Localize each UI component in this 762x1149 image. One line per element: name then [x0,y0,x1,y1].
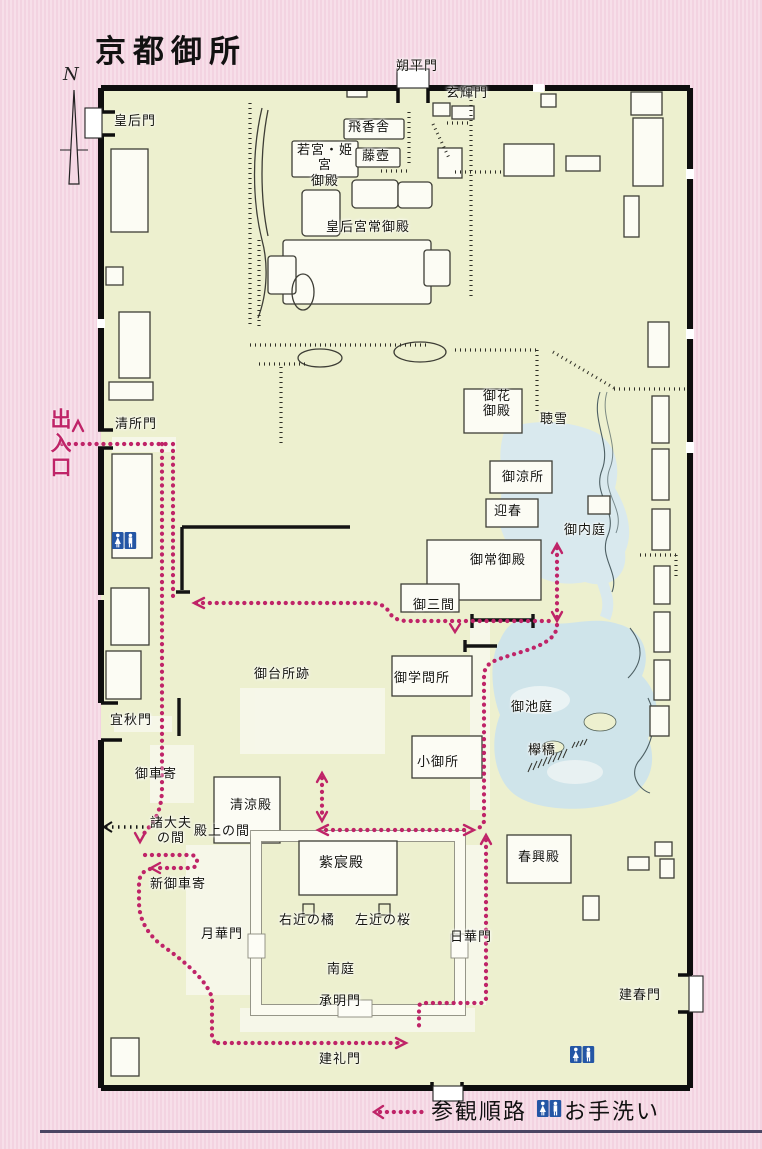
kyoto-gosho-map-page: 京都御所 N 出入口 皇后門 朔平門 玄輝門 飛香舎 藤壺 若宮・姫宮 御殿 皇… [0,0,762,1149]
legend-restroom-label: お手洗い [564,1094,660,1126]
label-shodaibu-no-ma: 諸大夫 の間 [146,816,196,847]
building-shape [111,588,149,645]
storehouse [654,660,670,700]
label-onaitei: 御内庭 [564,523,606,538]
label-ohana-goten: 御花 御殿 [476,389,518,420]
building-shape [424,250,450,286]
label-omima: 御三間 [413,598,455,613]
building-shape [655,842,672,856]
label-kogosho: 小御所 [417,755,459,770]
building-shape [106,267,123,285]
building-chosetsu [588,496,610,514]
building-shape [111,149,148,232]
building-shape [111,1038,139,1076]
building-shape [631,92,662,115]
label-kenreimon: 建礼門 [319,1052,361,1067]
label-oikeniwa: 御池庭 [511,700,553,715]
building-shape [504,144,554,176]
label-keyakibashi: 欅橋 [528,743,556,758]
label-gishumon: 宜秋門 [110,713,152,728]
label-shin-okurumayose: 新御車寄 [150,877,206,892]
label-oryosho: 御涼所 [502,470,544,485]
building-shape [624,196,639,237]
legend-route-label: 参観順路 [431,1094,527,1126]
label-geishun: 迎春 [494,504,522,519]
storehouse [650,706,669,736]
building-shape [452,106,474,119]
label-nantei: 南庭 [327,962,355,977]
label-shunkoden: 春興殿 [518,850,560,865]
storehouse [652,396,669,443]
label-gekkamon: 月華門 [201,927,243,942]
label-kenshunmon: 建春門 [619,988,661,1003]
building-kogogu-tsunegoten [283,240,431,304]
label-fujitsubo: 藤壺 [362,149,390,164]
label-shishinden: 紫宸殿 [319,855,364,872]
north-arrow-icon [60,90,88,184]
building-shape [433,103,450,116]
restroom-icon [537,1100,561,1117]
pond-highlight [547,760,603,784]
storehouse [648,322,669,367]
label-ukon-no-tachibana: 右近の橘 [279,913,335,928]
label-kogomon: 皇后門 [114,114,156,129]
bottom-rule [40,1130,762,1133]
label-kogogu-tsunegoten: 皇后宮常御殿 [326,220,410,235]
label-ogakumonjo: 御学問所 [394,671,450,686]
building-shape [660,859,674,878]
label-seiryoden: 清涼殿 [230,798,272,813]
building-shape [628,857,649,870]
storehouse [654,612,670,652]
storehouse [652,449,669,500]
building-shape [541,94,556,107]
label-otsune-goten: 御常御殿 [470,553,526,568]
building-shape [438,148,462,178]
label-odaidokoro-ato: 御台所跡 [254,667,310,682]
kogomon-gatehouse [85,108,102,138]
building-shape [566,156,600,171]
compass-north-label: N [63,64,79,85]
entrance-exit-label: 出入口 [45,408,75,480]
building-shape [398,182,432,208]
label-jomeimon: 承明門 [319,994,361,1009]
label-nikkamon: 日華門 [450,930,492,945]
kenshunmon-gatehouse [689,976,703,1012]
building-shape [109,382,153,400]
label-genkimon: 玄輝門 [446,86,488,101]
label-higyosha: 飛香舎 [348,120,390,135]
label-sakuheimon: 朔平門 [396,59,438,74]
gekkamon-gate [248,934,265,958]
label-tenjo-no-ma: 殿上の間 [194,824,250,839]
pond-island [584,713,616,731]
building-shape [119,312,150,378]
storehouse [652,509,670,550]
building-shape [583,896,599,920]
label-seishomon: 清所門 [115,417,157,432]
label-wakamiya-himemiya-goten: 若宮・姫宮 御殿 [291,143,359,189]
storehouse [654,566,670,604]
label-okurumayose: 御車寄 [135,767,177,782]
building-shape [633,118,663,186]
label-sakon-no-sakura: 左近の桜 [355,913,411,928]
palace-map-drawing [0,0,762,1149]
page-title: 京都御所 [95,26,247,71]
building-shape [106,651,141,699]
label-chosetsu: 聴雪 [540,412,568,427]
